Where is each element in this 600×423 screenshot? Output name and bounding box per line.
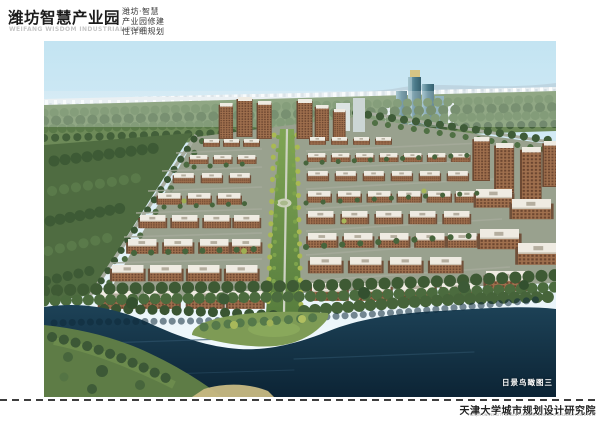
aerial-rendering-svg <box>44 41 556 397</box>
subtitle-line-2: 产业园修建 <box>122 17 165 27</box>
subtitle-line-3: 性详细规划 <box>122 27 165 37</box>
institute-name-english: TIANJIN UNIVERSITY URBAN PLANNING DESIGN… <box>468 413 596 417</box>
plan-board-page: 潍坊智慧产业园 WEIFANG WISDOM INDUSTRIAL PARK 潍… <box>0 0 600 423</box>
aerial-rendering: 日景鸟瞰图三 <box>44 41 556 397</box>
project-subtitle: 潍坊·智慧 产业园修建 性详细规划 <box>122 7 165 36</box>
page-title: 潍坊智慧产业园 <box>8 6 120 28</box>
subtitle-line-1: 潍坊·智慧 <box>122 7 165 17</box>
dashed-divider <box>0 399 600 401</box>
rendering-caption: 日景鸟瞰图三 <box>502 377 553 388</box>
